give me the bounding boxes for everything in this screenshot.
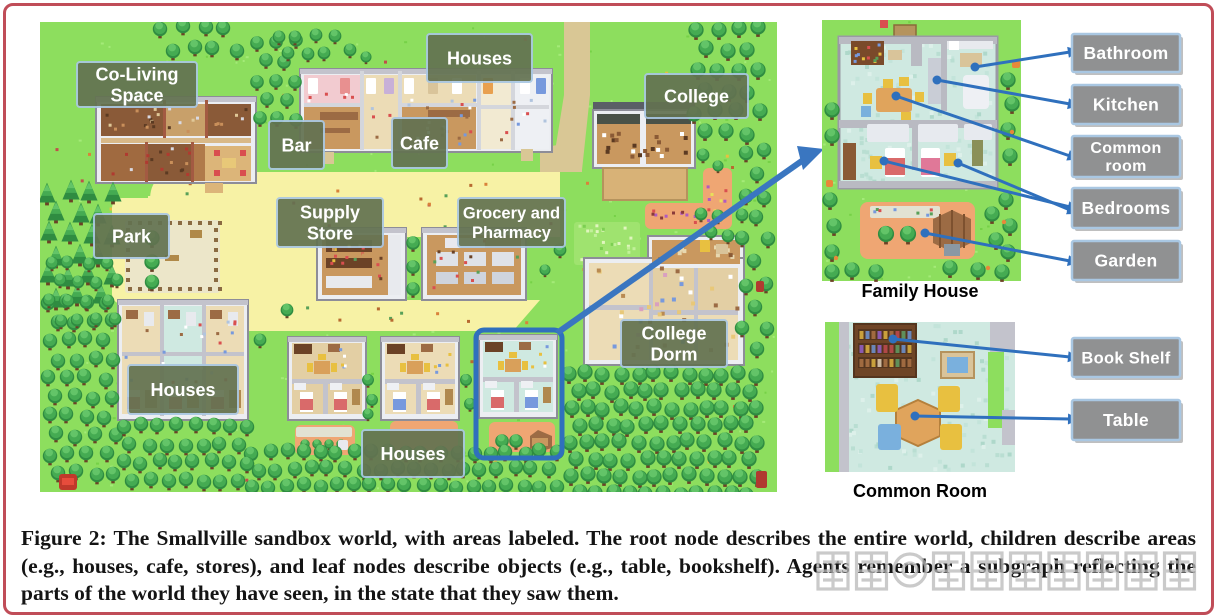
svg-text:Kitchen: Kitchen <box>1093 95 1159 115</box>
svg-text:Space: Space <box>110 85 163 105</box>
svg-text:Park: Park <box>112 226 152 246</box>
svg-text:Houses: Houses <box>150 380 215 400</box>
svg-text:Common: Common <box>1090 140 1161 157</box>
svg-text:Bar: Bar <box>281 135 311 155</box>
svg-text:Store: Store <box>307 223 353 243</box>
svg-text:Book Shelf: Book Shelf <box>1081 349 1170 367</box>
svg-text:Bathroom: Bathroom <box>1083 43 1168 63</box>
svg-text:Family House: Family House <box>861 281 978 301</box>
svg-text:College: College <box>641 323 706 343</box>
svg-text:College: College <box>664 86 729 106</box>
svg-text:Dorm: Dorm <box>650 344 697 364</box>
svg-text:Common Room: Common Room <box>853 481 987 501</box>
svg-text:Supply: Supply <box>300 202 360 222</box>
svg-text:Table: Table <box>1103 410 1149 430</box>
svg-text:room: room <box>1105 158 1146 175</box>
svg-text:Co-Living: Co-Living <box>96 64 179 84</box>
svg-text:Bedrooms: Bedrooms <box>1082 198 1171 218</box>
svg-text:Grocery and: Grocery and <box>463 205 560 223</box>
svg-text:Cafe: Cafe <box>400 133 439 153</box>
svg-text:Garden: Garden <box>1094 251 1157 271</box>
svg-text:Pharmacy: Pharmacy <box>472 224 552 242</box>
svg-text:Houses: Houses <box>380 444 445 464</box>
svg-text:Houses: Houses <box>447 48 512 68</box>
